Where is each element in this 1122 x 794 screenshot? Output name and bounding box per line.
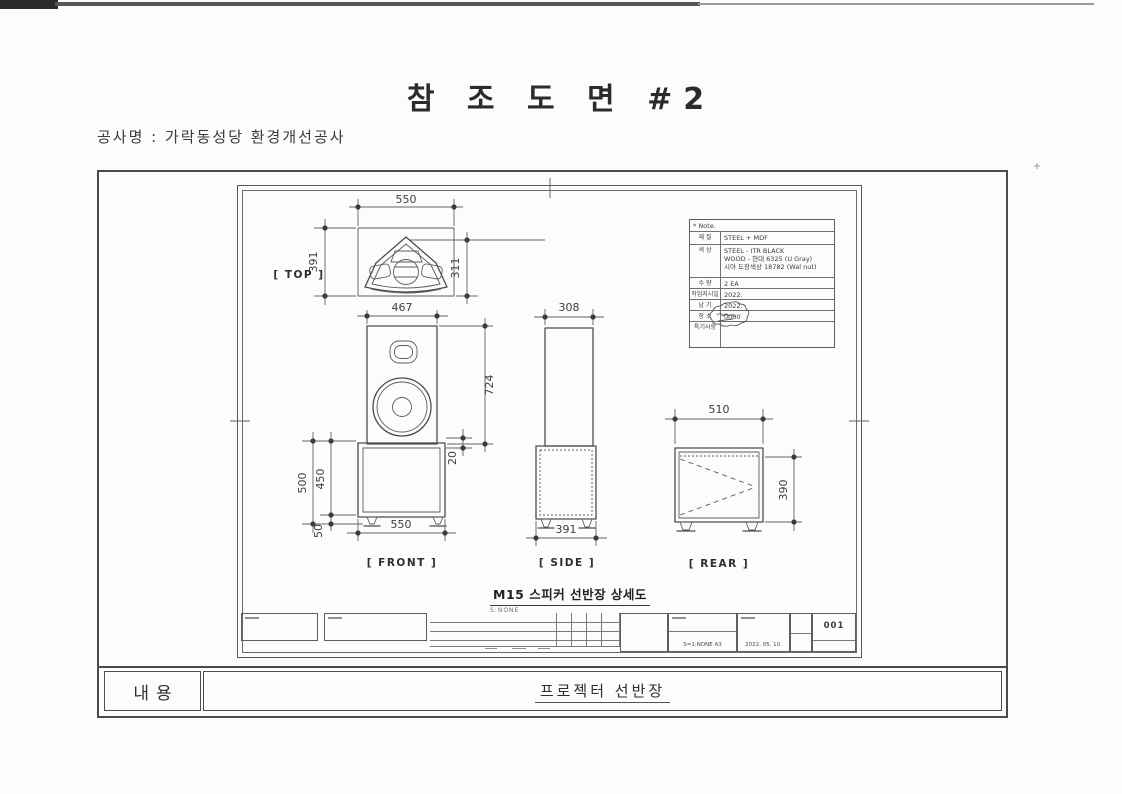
notes-row-quantity: 수 량 2 EA [690,277,834,288]
notes-table: * Note. 재 질 STEEL + MDF 색 상 STEEL - ITR … [689,219,835,348]
titleblock-box-a [241,613,318,641]
illegible-text-mark [741,617,755,619]
sheet-scale-size: S=1:NONE A3 [669,642,736,648]
titleblock-revision-grid [430,613,620,652]
notes-row-material: 재 질 STEEL + MDF [690,231,834,244]
notes-row-place: 장 소 0000 [690,310,834,321]
illegible-text-mark [328,617,342,619]
titleblock-small-box [790,613,812,652]
footer-label-cell: 내용 [104,671,201,711]
sheet-date: 2022. 05. 10. [738,642,789,648]
notes-row-order-date: 작업지시일 2022. [690,288,834,299]
notes-row-remarks: 특기사항 [690,321,834,347]
scanned-page: 참 조 도 면 #2 공사명 : 가락동성당 환경개선공사 * Note. 재 … [0,0,1122,794]
scan-artifact-strip-dark [0,0,58,9]
scan-artifact-strip-light [698,3,1094,5]
titleblock-scale-box: S=1:NONE A3 [668,613,737,652]
titleblock-box-empty [620,613,668,652]
titleblock-number-box: 001 [812,613,856,652]
titleblock-box-b [324,613,427,641]
footer-value-cell: 프로젝터 선반장 [203,671,1002,711]
notes-title: * Note. [693,222,716,229]
notes-row-color: 색 상 STEEL - ITR BLACK WOOD - 현대 6325 (U … [690,244,834,277]
scan-artifact-strip-mid [55,2,700,6]
project-name: 공사명 : 가락동성당 환경개선공사 [97,126,346,147]
page-title: 참 조 도 면 #2 [0,74,1122,118]
notes-row-due-date: 납 기 2022. [690,299,834,310]
drawing-title: M15 스피커 선반장 상세도 [490,584,650,606]
scan-plus-artifact [1034,163,1040,169]
illegible-text-mark [245,617,259,619]
notes-header-row: * Note. [690,220,834,231]
drawing-scale: S:NONE [490,607,650,614]
illegible-text-mark [672,617,686,619]
drawing-title-block: M15 스피커 선반장 상세도 S:NONE [490,584,650,614]
sheet-number: 001 [813,621,855,631]
footer-value-text: 프로젝터 선반장 [535,680,670,703]
titleblock-date-box: 2022. 05. 10. [737,613,790,652]
